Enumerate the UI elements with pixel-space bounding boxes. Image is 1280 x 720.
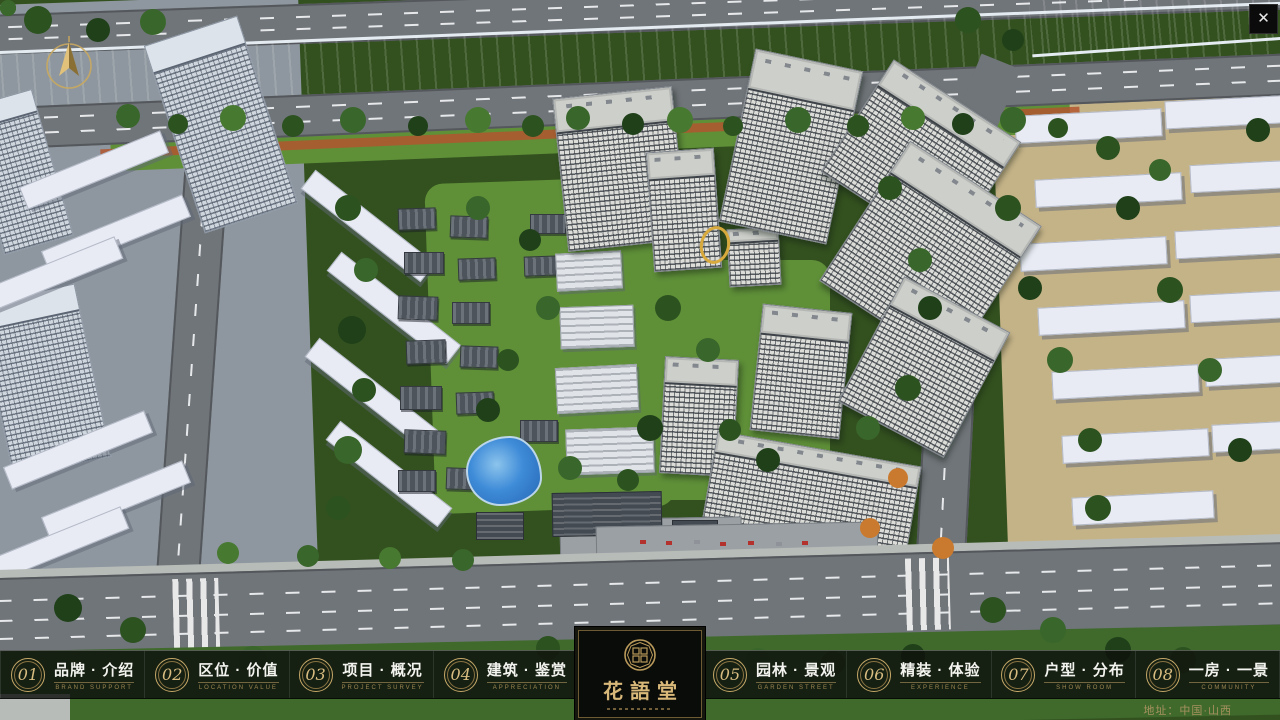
gate-pavilion-left [476,512,524,540]
menu-label-zh: 一房 · 一景 [1189,659,1269,680]
project-logo-panel: 花語堂 [578,630,702,718]
menu-item-project[interactable]: 03 项目 · 概况 PROJECT SURVEY [289,651,433,698]
courtyard-home [450,215,489,238]
menu-badge: 01 [11,658,45,692]
masterplan-3d-view[interactable]: ✕ 01 品牌 · 介绍 BRAND SUPPORT 02 区位 · 价值 LO… [0,0,1280,720]
menu-label-en: SHOW ROOM [1044,682,1124,691]
menu-item-garden[interactable]: 05 园林 · 景观 GARDEN STREET [702,651,846,698]
menu-label-zh: 精装 · 体验 [900,659,980,680]
menu-item-interior[interactable]: 06 精装 · 体验 EXPERIENCE [846,651,990,698]
east-slab-8 [1189,289,1280,323]
menu-label-zh: 园林 · 景观 [756,659,836,680]
menu-item-views[interactable]: 08 一房 · 一景 COMMUNITY [1135,651,1280,698]
east-slab-2 [1164,95,1280,130]
menu-item-floorplan[interactable]: 07 户型 · 分布 SHOW ROOM [991,651,1135,698]
menu-badge: 04 [444,658,478,692]
courtyard-home [404,429,447,454]
courtyard-home [452,302,490,324]
menu-label-en: COMMUNITY [1189,682,1269,691]
courtyard-home [398,207,437,230]
east-slab-6 [1174,225,1280,260]
courtyard-home [404,252,444,274]
menu-badge: 02 [155,658,189,692]
swimming-pool [466,436,542,506]
menu-badge: 05 [713,658,747,692]
close-button[interactable]: ✕ [1249,4,1278,34]
crosswalk-east [905,557,951,630]
menu-label-zh: 项目 · 概况 [342,659,422,680]
tree-cluster-south-east [0,0,16,16]
menu-label-en: EXPERIENCE [900,682,980,691]
project-address: 地址：中国·山西 [1143,702,1232,718]
courtyard-home [406,339,447,364]
courtyard-home [458,257,497,280]
east-slab-4 [1189,159,1280,193]
compass-north-icon [38,32,100,94]
parked-cars [640,540,646,544]
courtyard-home [520,420,558,442]
menu-label-zh: 户型 · 分布 [1044,659,1124,680]
courtyard-home [530,214,566,234]
east-slab-12 [1211,419,1280,453]
crosswalk-west [172,578,220,651]
menu-badge: 03 [299,658,333,692]
east-slab-10 [1204,353,1280,387]
menu-group-right: 05 园林 · 景观 GARDEN STREET 06 精装 · 体验 EXPE… [702,651,1280,698]
estate-tower-7 [750,304,853,440]
menu-badge: 08 [1146,658,1180,692]
courtyard-home [400,386,442,410]
menu-label-zh: 区位 · 价值 [198,659,278,680]
menu-badge: 06 [857,658,891,692]
estate-midrise-1 [555,250,623,291]
logo-seal-icon [623,638,657,672]
estate-midrise-2 [559,305,634,350]
courtyard-home [398,470,436,492]
menu-label-en: GARDEN STREET [756,682,836,691]
estate-midrise-3 [555,364,639,414]
menu-item-brand[interactable]: 01 品牌 · 介绍 BRAND SUPPORT [0,651,144,698]
logo-caption-line [607,708,673,710]
menu-label-en: LOCATION VALUE [198,682,278,691]
menu-badge: 07 [1001,658,1035,692]
menu-label-en: BRAND SUPPORT [54,682,134,691]
menu-label-zh: 品牌 · 介绍 [54,659,134,680]
menu-group-left: 01 品牌 · 介绍 BRAND SUPPORT 02 区位 · 价值 LOCA… [0,651,578,698]
courtyard-home [460,345,499,368]
project-logo-title: 花語堂 [596,675,684,704]
menu-label-en: PROJECT SURVEY [342,682,424,691]
menu-label-en: APPRECIATION [487,682,567,691]
menu-item-architecture[interactable]: 04 建筑 · 鉴赏 APPRECIATION [433,651,578,698]
courtyard-home [398,295,439,320]
estate-midrise-4 [565,426,655,475]
courtyard-home [456,391,495,414]
menu-item-location[interactable]: 02 区位 · 价值 LOCATION VALUE [144,651,288,698]
menu-label-zh: 建筑 · 鉴赏 [487,659,567,680]
estate-tower-3 [727,227,782,288]
